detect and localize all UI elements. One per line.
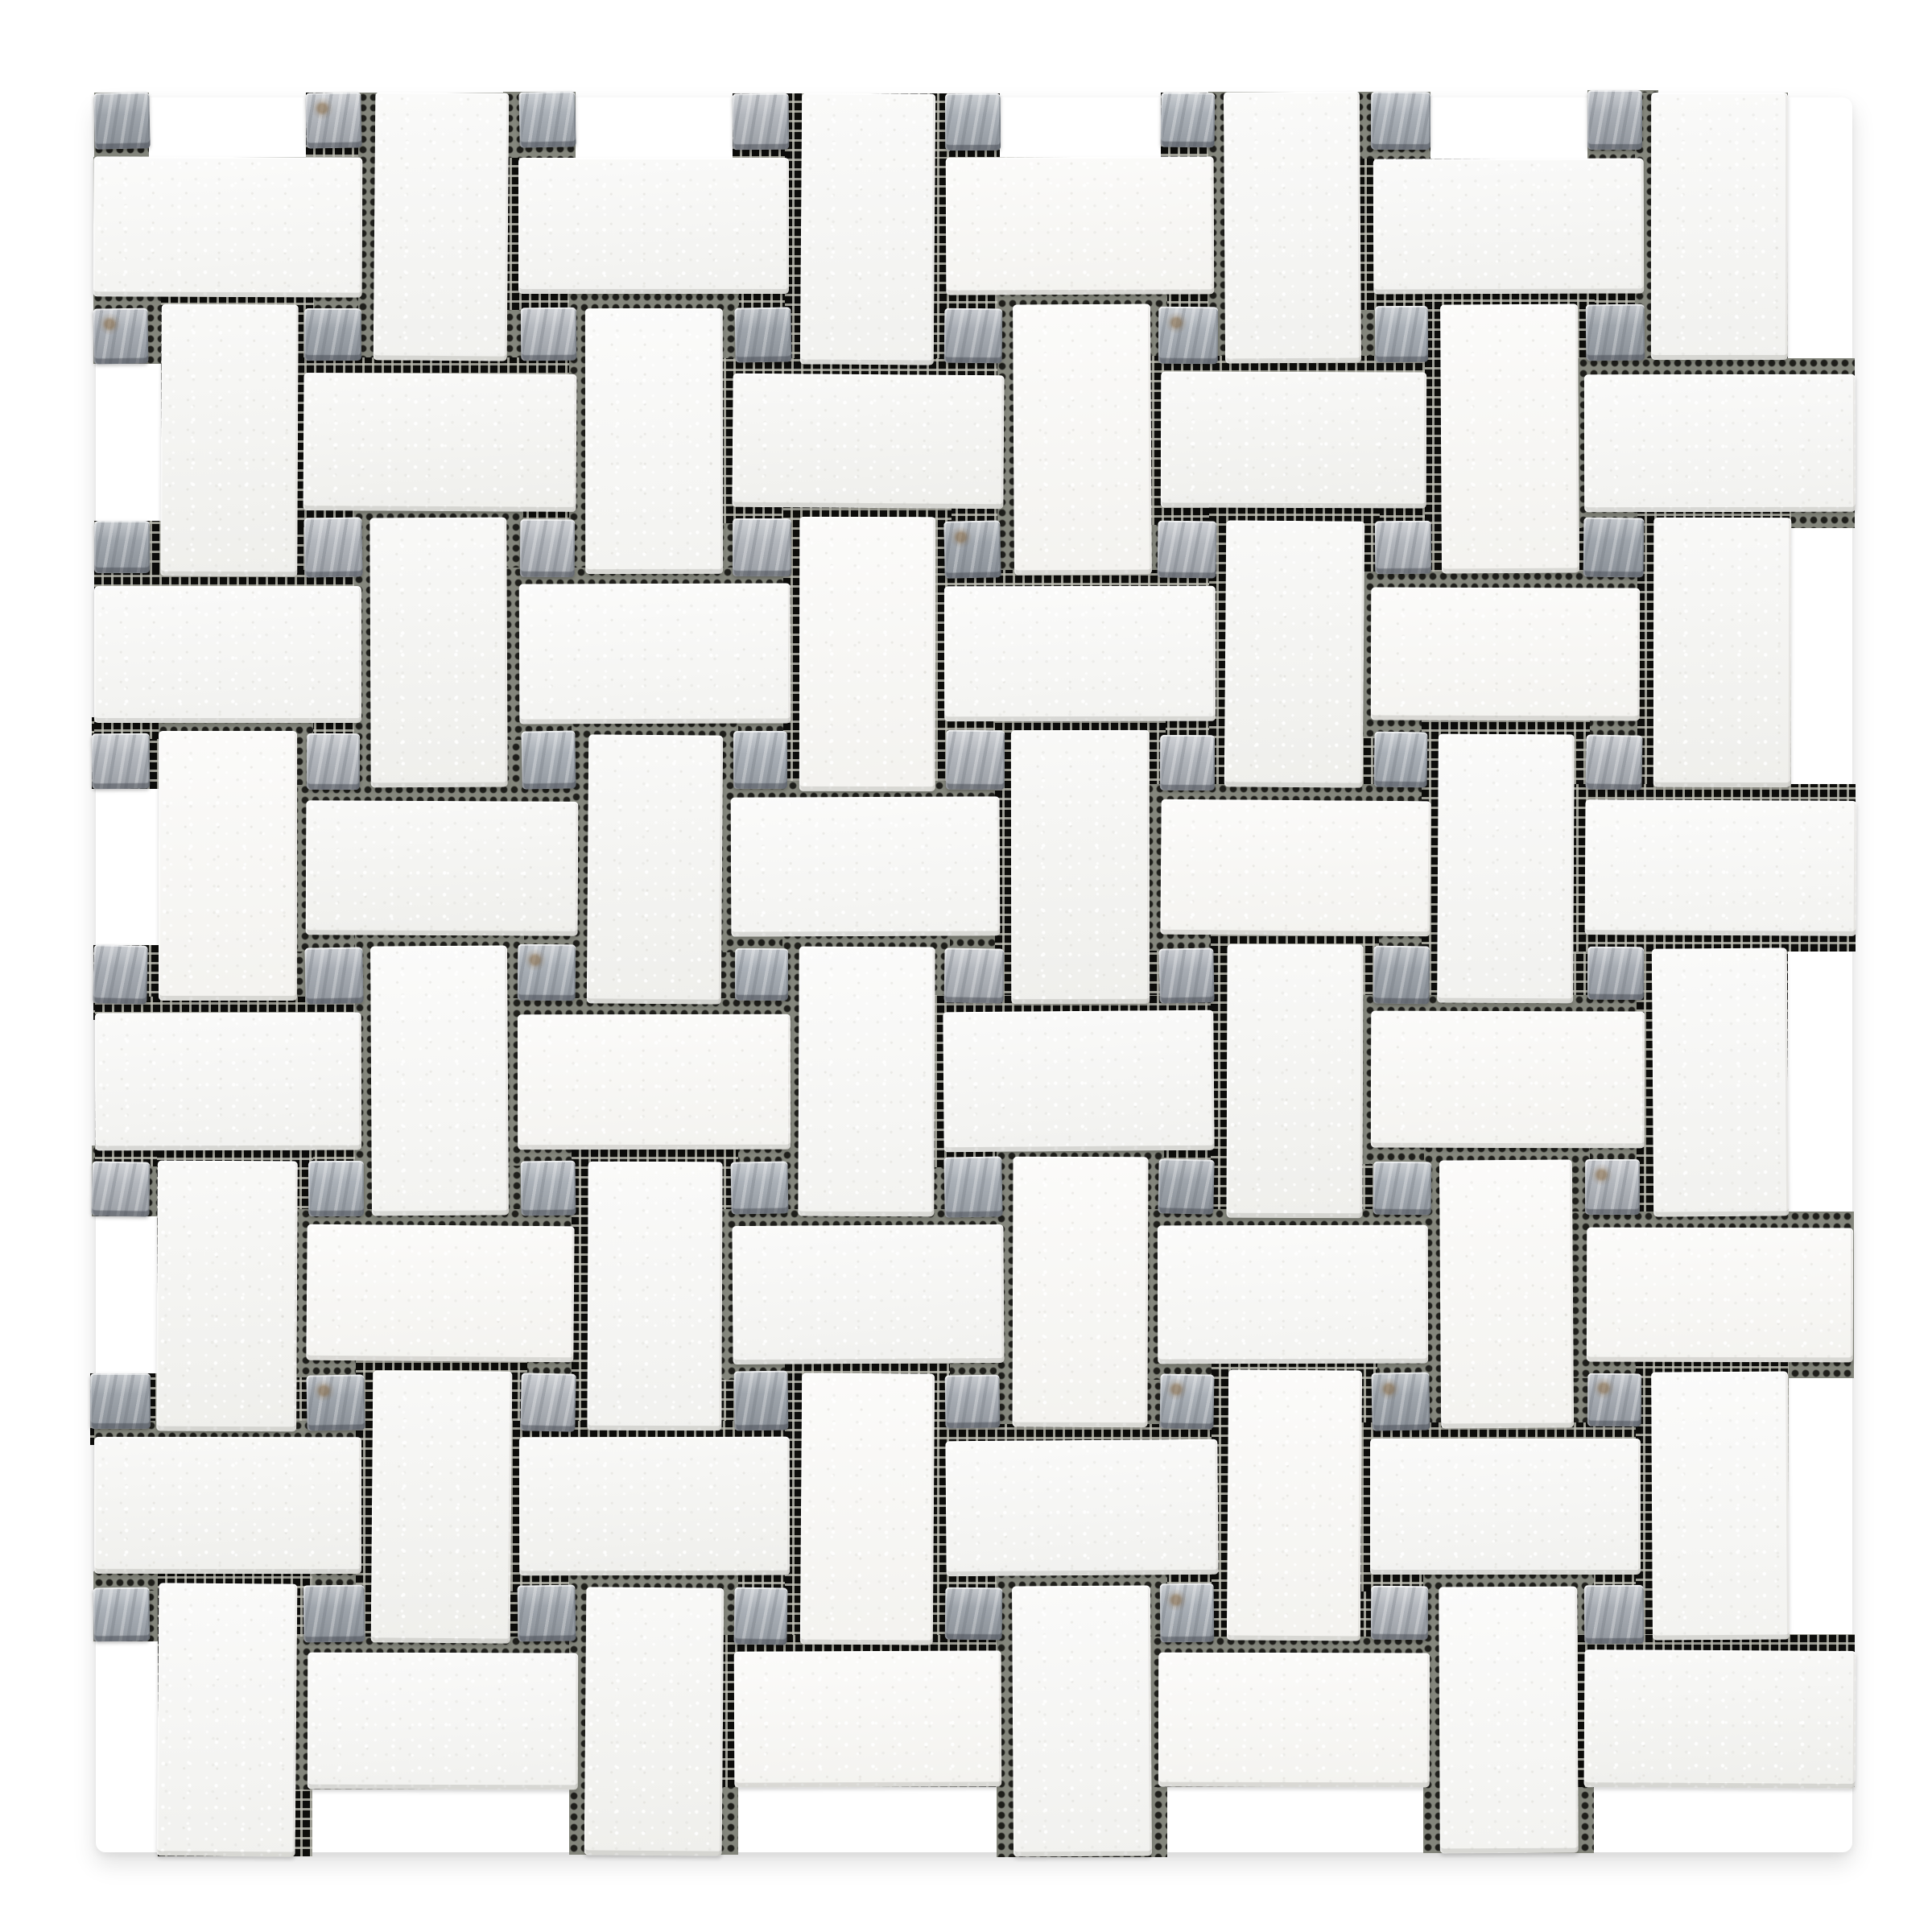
marble-tile-horizontal: [1371, 1010, 1645, 1148]
marble-dot-tile: [734, 307, 791, 362]
marble-tile-horizontal: [1161, 372, 1427, 509]
marble-dot-tile: [303, 517, 362, 577]
marble-dot-tile: [517, 943, 576, 1000]
marble-tile-horizontal: [518, 1014, 791, 1150]
marble-dot-tile: [943, 520, 1001, 578]
marble-dot-tile: [94, 521, 150, 573]
marble-dot-tile: [304, 308, 361, 361]
marble-tile-horizontal: [1370, 1439, 1641, 1575]
marble-tile-vertical: [374, 92, 509, 361]
marble-dot-tile: [90, 1373, 151, 1430]
marble-dot-tile: [944, 93, 1000, 151]
marble-dot-tile: [1375, 521, 1431, 575]
marble-tile-horizontal: [944, 586, 1216, 721]
marble-dot-tile: [308, 1161, 364, 1216]
marble-tile-horizontal: [306, 1224, 574, 1363]
marble-dot-tile: [93, 1587, 150, 1641]
marble-dot-tile: [91, 1161, 150, 1216]
marble-dot-tile: [730, 1161, 788, 1214]
marble-tile-horizontal: [518, 584, 790, 725]
marble-dot-tile: [945, 1374, 1001, 1427]
marble-dot-tile: [306, 92, 362, 148]
marble-tile-vertical: [587, 734, 723, 1004]
marble-tile-horizontal: [1584, 799, 1856, 936]
marble-dot-tile: [1159, 1373, 1214, 1429]
marble-dot-tile: [1160, 1583, 1214, 1642]
marble-tile-vertical: [587, 1161, 722, 1430]
marble-tile-vertical: [585, 308, 724, 574]
marble-tile-horizontal: [731, 796, 1001, 937]
marble-tile-horizontal: [306, 800, 578, 935]
marble-dot-tile: [1585, 304, 1644, 361]
product-photo: [0, 0, 1932, 1932]
marble-dot-tile: [1158, 1158, 1214, 1214]
marble-tile-horizontal: [518, 158, 789, 294]
marble-dot-tile: [521, 1373, 576, 1431]
marble-tile-horizontal: [1158, 1225, 1428, 1364]
marble-tile-horizontal: [303, 373, 577, 512]
marble-tile-vertical: [369, 517, 507, 786]
marble-dot-tile: [735, 947, 788, 1000]
marble-dot-tile: [1161, 93, 1216, 147]
marble-dot-tile: [1158, 520, 1217, 578]
marble-dot-tile: [1158, 947, 1214, 1003]
marble-tile-horizontal: [1583, 374, 1855, 512]
marble-tile-vertical: [1653, 518, 1792, 787]
marble-dot-tile: [1371, 1586, 1428, 1641]
marble-dot-tile: [1159, 734, 1214, 790]
marble-tile-vertical: [1224, 520, 1364, 788]
page: { "scene": { "type": "product-photo", "s…: [0, 0, 1932, 1932]
marble-tile-horizontal: [733, 1651, 1001, 1789]
marble-tile-horizontal: [1373, 158, 1645, 294]
marble-tile-vertical: [1437, 734, 1575, 1003]
marble-dot-tile: [944, 308, 1003, 363]
marble-tile-vertical: [1227, 1370, 1362, 1641]
marble-dot-tile: [93, 92, 150, 149]
marble-dot-tile: [1158, 307, 1218, 364]
marble-tile-vertical: [1013, 303, 1152, 575]
marble-tile-vertical: [370, 946, 509, 1216]
marble-dot-tile: [945, 1587, 1003, 1641]
marble-tile-vertical: [160, 304, 299, 576]
marble-dot-tile: [944, 1156, 1003, 1217]
marble-dot-tile: [1585, 1159, 1640, 1215]
marble-dot-tile: [733, 1587, 787, 1645]
marble-tile-horizontal: [94, 1437, 362, 1575]
marble-dot-tile: [93, 944, 148, 1004]
marble-dot-tile: [734, 1371, 789, 1431]
marble-tile-vertical: [798, 947, 935, 1217]
marble-tile-horizontal: [1587, 1228, 1854, 1363]
marble-dot-tile: [93, 308, 148, 364]
marble-tile-vertical: [1440, 303, 1579, 573]
marble-dot-tile: [1583, 517, 1645, 577]
marble-tile-horizontal: [1158, 1653, 1430, 1788]
marble-tile-vertical: [1224, 92, 1361, 364]
marble-tile-vertical: [1651, 93, 1788, 360]
marble-dot-tile: [944, 947, 1005, 1003]
marble-tile-vertical: [370, 1371, 512, 1645]
marble-tile-horizontal: [95, 1013, 361, 1151]
marble-dot-tile: [517, 1584, 576, 1641]
marble-tile-vertical: [1012, 1157, 1148, 1428]
marble-dot-tile: [946, 730, 1005, 791]
marble-tile-vertical: [156, 1160, 298, 1431]
marble-dot-tile: [1587, 90, 1642, 150]
marble-tile-vertical: [584, 1587, 724, 1856]
marble-tile-horizontal: [946, 1439, 1219, 1576]
marble-tile-vertical: [1651, 1371, 1790, 1640]
marble-tile-vertical: [1226, 943, 1363, 1217]
marble-dot-tile: [521, 308, 576, 361]
marble-tile-vertical: [1439, 1587, 1578, 1854]
marble-dot-tile: [1373, 731, 1427, 787]
marble-dot-tile: [733, 731, 787, 789]
marble-tile-horizontal: [519, 1437, 790, 1576]
marble-tile-horizontal: [308, 1653, 578, 1790]
marble-dot-tile: [303, 1585, 365, 1643]
marble-tile-horizontal: [945, 157, 1213, 295]
marble-dot-tile: [1585, 734, 1642, 790]
marble-dot-tile: [1373, 1161, 1430, 1215]
marble-tile-vertical: [799, 93, 935, 365]
marble-dot-tile: [1374, 305, 1428, 361]
marble-dot-tile: [520, 519, 576, 577]
marble-dot-tile: [1587, 1373, 1641, 1427]
marble-tile-horizontal: [1583, 1649, 1856, 1788]
marble-tile-vertical: [156, 1583, 297, 1856]
marble-dot-tile: [304, 947, 363, 1005]
marble-dot-tile: [521, 730, 576, 789]
marble-tile-horizontal: [1371, 588, 1641, 721]
marble-tile-horizontal: [1161, 799, 1431, 935]
marble-dot-tile: [306, 1374, 365, 1430]
marble-dot-tile: [92, 733, 150, 789]
marble-tile-horizontal: [93, 156, 362, 298]
mosaic-sheet: [0, 0, 1932, 1932]
marble-tile-horizontal: [943, 1010, 1215, 1153]
marble-tile-horizontal: [733, 1224, 1005, 1364]
marble-dot-tile: [733, 518, 791, 576]
marble-tile-vertical: [799, 517, 935, 791]
marble-dot-tile: [1587, 947, 1644, 1001]
marble-tile-vertical: [1439, 1159, 1575, 1428]
marble-dot-tile: [1372, 1373, 1430, 1431]
marble-tile-horizontal: [94, 586, 361, 723]
marble-dot-tile: [1373, 945, 1430, 1004]
marble-dot-tile: [1371, 92, 1430, 151]
marble-tile-vertical: [1651, 947, 1789, 1216]
marble-dot-tile: [520, 1160, 576, 1215]
marble-dot-tile: [1584, 1585, 1644, 1644]
marble-tile-vertical: [159, 731, 298, 1001]
marble-dot-tile: [307, 733, 361, 791]
marble-dot-tile: [518, 91, 576, 147]
marble-tile-vertical: [800, 1373, 935, 1645]
marble-tile-horizontal: [732, 373, 1004, 508]
marble-dot-tile: [732, 93, 788, 151]
marble-tile-vertical: [1011, 730, 1150, 1004]
marble-tile-vertical: [1012, 1586, 1152, 1857]
